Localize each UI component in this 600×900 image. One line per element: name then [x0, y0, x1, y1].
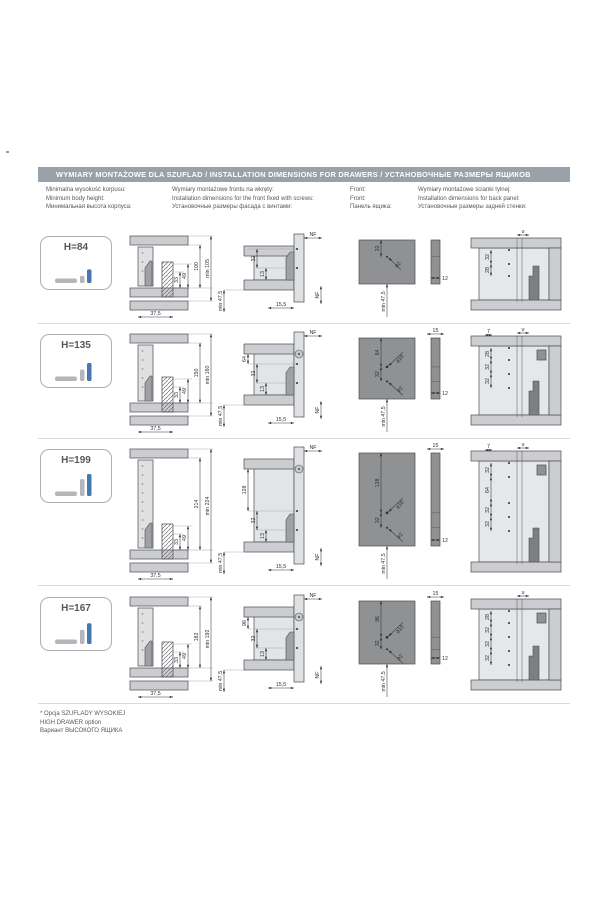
svg-text:37,5: 37,5 — [150, 691, 160, 697]
drawer-row-H-84: H=843349100min 10537,51332min 47,515,5NF… — [38, 228, 570, 324]
svg-text:7: 7 — [487, 329, 490, 335]
back-panel-drawing: 283232329 — [465, 591, 570, 700]
svg-text:7: 7 — [487, 444, 490, 450]
svg-text:32: 32 — [485, 364, 491, 370]
front-panel-drawing: 12832ø10ø2min 47,51512 — [343, 443, 453, 582]
front-screw-drawing: 1332128min 47,515,5NFNF — [210, 443, 330, 582]
drawer-row-H-199: H=1993349214min 22437,51332128min 47,515… — [38, 441, 570, 586]
back-panel-drawing: 28323279 — [465, 328, 570, 435]
svg-text:33: 33 — [174, 539, 180, 545]
svg-text:32: 32 — [251, 256, 257, 262]
column-header-line: Front: — [350, 195, 414, 204]
svg-text:min 47,5: min 47,5 — [381, 291, 387, 311]
column-header-3: Front:Front:Панель ящика: — [350, 186, 414, 212]
svg-text:12: 12 — [442, 656, 448, 662]
svg-text:28: 28 — [485, 267, 491, 273]
svg-text:32: 32 — [485, 507, 491, 513]
svg-text:13: 13 — [260, 386, 266, 392]
svg-text:32: 32 — [485, 641, 491, 647]
svg-text:NF: NF — [315, 553, 321, 561]
svg-text:28: 28 — [485, 614, 491, 620]
svg-text:12: 12 — [442, 391, 448, 397]
column-header-line: Панель ящика: — [350, 203, 414, 212]
svg-text:9: 9 — [522, 591, 525, 596]
column-header-4: Wymiary montażowe ścianki tylnej:Install… — [418, 186, 568, 212]
svg-text:32: 32 — [375, 371, 381, 377]
svg-text:37,5: 37,5 — [150, 426, 160, 432]
drawer-profile-icon — [54, 259, 98, 284]
svg-text:15,5: 15,5 — [276, 302, 286, 308]
back-panel-drawing: 3264323279 — [465, 443, 570, 582]
column-header-2: Wymiary montażowe frontu na wkręty:Insta… — [172, 186, 344, 212]
svg-text:min 47,5: min 47,5 — [381, 553, 387, 573]
svg-text:64: 64 — [485, 487, 491, 493]
back-panel-drawing: 32289 — [465, 230, 570, 320]
svg-text:128: 128 — [375, 478, 381, 487]
front-panel-drawing: 6432ø10ø2min 47,51512 — [343, 328, 453, 435]
body-height-drawing: 3349214min 22437,5 — [100, 443, 215, 582]
svg-text:96: 96 — [242, 620, 248, 626]
svg-text:12: 12 — [442, 538, 448, 544]
svg-text:214: 214 — [194, 500, 200, 509]
drawer-row-H-167: H=1673349182min 19237,5133296min 47,515,… — [38, 589, 570, 704]
svg-text:37,5: 37,5 — [150, 311, 160, 317]
svg-text:49: 49 — [182, 535, 188, 541]
footnote-line: * Opcja SZUFLADY WYSOKIEJ — [40, 710, 125, 719]
svg-text:NF: NF — [315, 406, 321, 414]
column-header-line: Front: — [350, 186, 414, 195]
front-panel-drawing: 32ø2min 47,512 — [343, 230, 453, 320]
svg-text:64: 64 — [242, 356, 248, 362]
footnote-line: HIGH DRAWER option — [40, 719, 125, 728]
svg-text:min 47,5: min 47,5 — [381, 671, 387, 691]
svg-text:NF: NF — [315, 291, 321, 299]
svg-text:32: 32 — [375, 640, 381, 646]
svg-text:33: 33 — [174, 277, 180, 283]
svg-text:15: 15 — [433, 328, 439, 334]
svg-text:96: 96 — [375, 616, 381, 622]
svg-text:15: 15 — [433, 443, 439, 449]
svg-text:32: 32 — [375, 517, 381, 523]
column-header-line: Установочные размеры задней стенки: — [418, 203, 568, 212]
column-header-line: Minimalna wysokość korpusu: — [46, 186, 166, 195]
svg-text:NF: NF — [309, 593, 317, 599]
svg-text:64: 64 — [375, 349, 381, 355]
svg-text:100: 100 — [194, 262, 200, 271]
svg-text:37,5: 37,5 — [150, 573, 160, 579]
svg-text:min 47,5: min 47,5 — [381, 406, 387, 426]
catalog-page: WYMIARY MONTAŻOWE DLA SZUFLAD / INSTALLA… — [0, 0, 600, 900]
page-edge-mark — [6, 151, 9, 153]
page-title: WYMIARY MONTAŻOWE DLA SZUFLAD / INSTALLA… — [38, 167, 570, 182]
front-screw-drawing: 133296min 47,515,5NFNF — [210, 591, 330, 700]
svg-text:NF: NF — [315, 671, 321, 679]
front-screw-drawing: 1332min 47,515,5NFNF — [210, 230, 330, 320]
svg-text:182: 182 — [194, 633, 200, 642]
svg-text:32: 32 — [485, 467, 491, 473]
svg-text:15,5: 15,5 — [276, 564, 286, 570]
column-header-line: Minimum body height: — [46, 195, 166, 204]
svg-text:NF: NF — [309, 232, 317, 238]
svg-text:32: 32 — [485, 627, 491, 633]
svg-text:9: 9 — [522, 443, 525, 448]
svg-text:NF: NF — [309, 330, 317, 336]
svg-text:33: 33 — [174, 392, 180, 398]
svg-text:9: 9 — [522, 328, 525, 333]
svg-text:min 47,5: min 47,5 — [218, 553, 224, 573]
svg-text:15: 15 — [433, 591, 439, 597]
svg-text:32: 32 — [251, 518, 257, 524]
svg-text:15,5: 15,5 — [276, 417, 286, 423]
column-header-line: Минимальная высота корпуса: — [46, 203, 166, 212]
svg-text:49: 49 — [182, 273, 188, 279]
footnote-line: Вариант ВЫСОКОГО ЯЩИКА — [40, 727, 125, 736]
front-screw-drawing: 133264min 47,515,5NFNF — [210, 328, 330, 435]
svg-text:32: 32 — [485, 655, 491, 661]
column-header-line: Установочные размеры фасада с винтами: — [172, 203, 344, 212]
column-header-line: Installation dimensions for back panel: — [418, 195, 568, 204]
column-header-line: Wymiary montażowe frontu na wkręty: — [172, 186, 344, 195]
svg-text:32: 32 — [485, 378, 491, 384]
svg-text:32: 32 — [375, 245, 381, 251]
drawer-profile-icon — [54, 472, 98, 497]
svg-text:12: 12 — [442, 276, 448, 282]
svg-text:28: 28 — [485, 351, 491, 357]
svg-text:min 47,5: min 47,5 — [218, 671, 224, 691]
svg-text:128: 128 — [242, 486, 248, 495]
body-height-drawing: 3349182min 19237,5 — [100, 591, 215, 700]
footnote: * Opcja SZUFLADY WYSOKIEJHIGH DRAWER opt… — [40, 710, 125, 736]
svg-text:13: 13 — [260, 651, 266, 657]
svg-text:13: 13 — [260, 271, 266, 277]
svg-text:32: 32 — [251, 636, 257, 642]
svg-text:15,5: 15,5 — [276, 682, 286, 688]
svg-text:min 47,5: min 47,5 — [218, 406, 224, 426]
svg-text:49: 49 — [182, 388, 188, 394]
column-header-line: Installation dimensions for the front fi… — [172, 195, 344, 204]
svg-text:150: 150 — [194, 369, 200, 378]
drawer-profile-icon — [54, 620, 98, 645]
svg-text:49: 49 — [182, 653, 188, 659]
body-height-drawing: 3349100min 10537,5 — [100, 230, 215, 320]
svg-text:9: 9 — [522, 230, 525, 235]
svg-text:NF: NF — [309, 445, 317, 451]
svg-text:33: 33 — [174, 657, 180, 663]
svg-text:32: 32 — [251, 371, 257, 377]
svg-text:32: 32 — [485, 254, 491, 260]
svg-text:min 47,5: min 47,5 — [218, 291, 224, 311]
column-header-line: Wymiary montażowe ścianki tylnej: — [418, 186, 568, 195]
column-header-1: Minimalna wysokość korpusu:Minimum body … — [46, 186, 166, 212]
svg-text:32: 32 — [485, 521, 491, 527]
drawer-profile-icon — [54, 357, 98, 382]
svg-text:13: 13 — [260, 533, 266, 539]
front-panel-drawing: 9632ø10ø2min 47,51512 — [343, 591, 453, 700]
body-height-drawing: 3349150min 16037,5 — [100, 328, 215, 435]
drawer-row-H-135: H=1353349150min 16037,5133264min 47,515,… — [38, 326, 570, 439]
